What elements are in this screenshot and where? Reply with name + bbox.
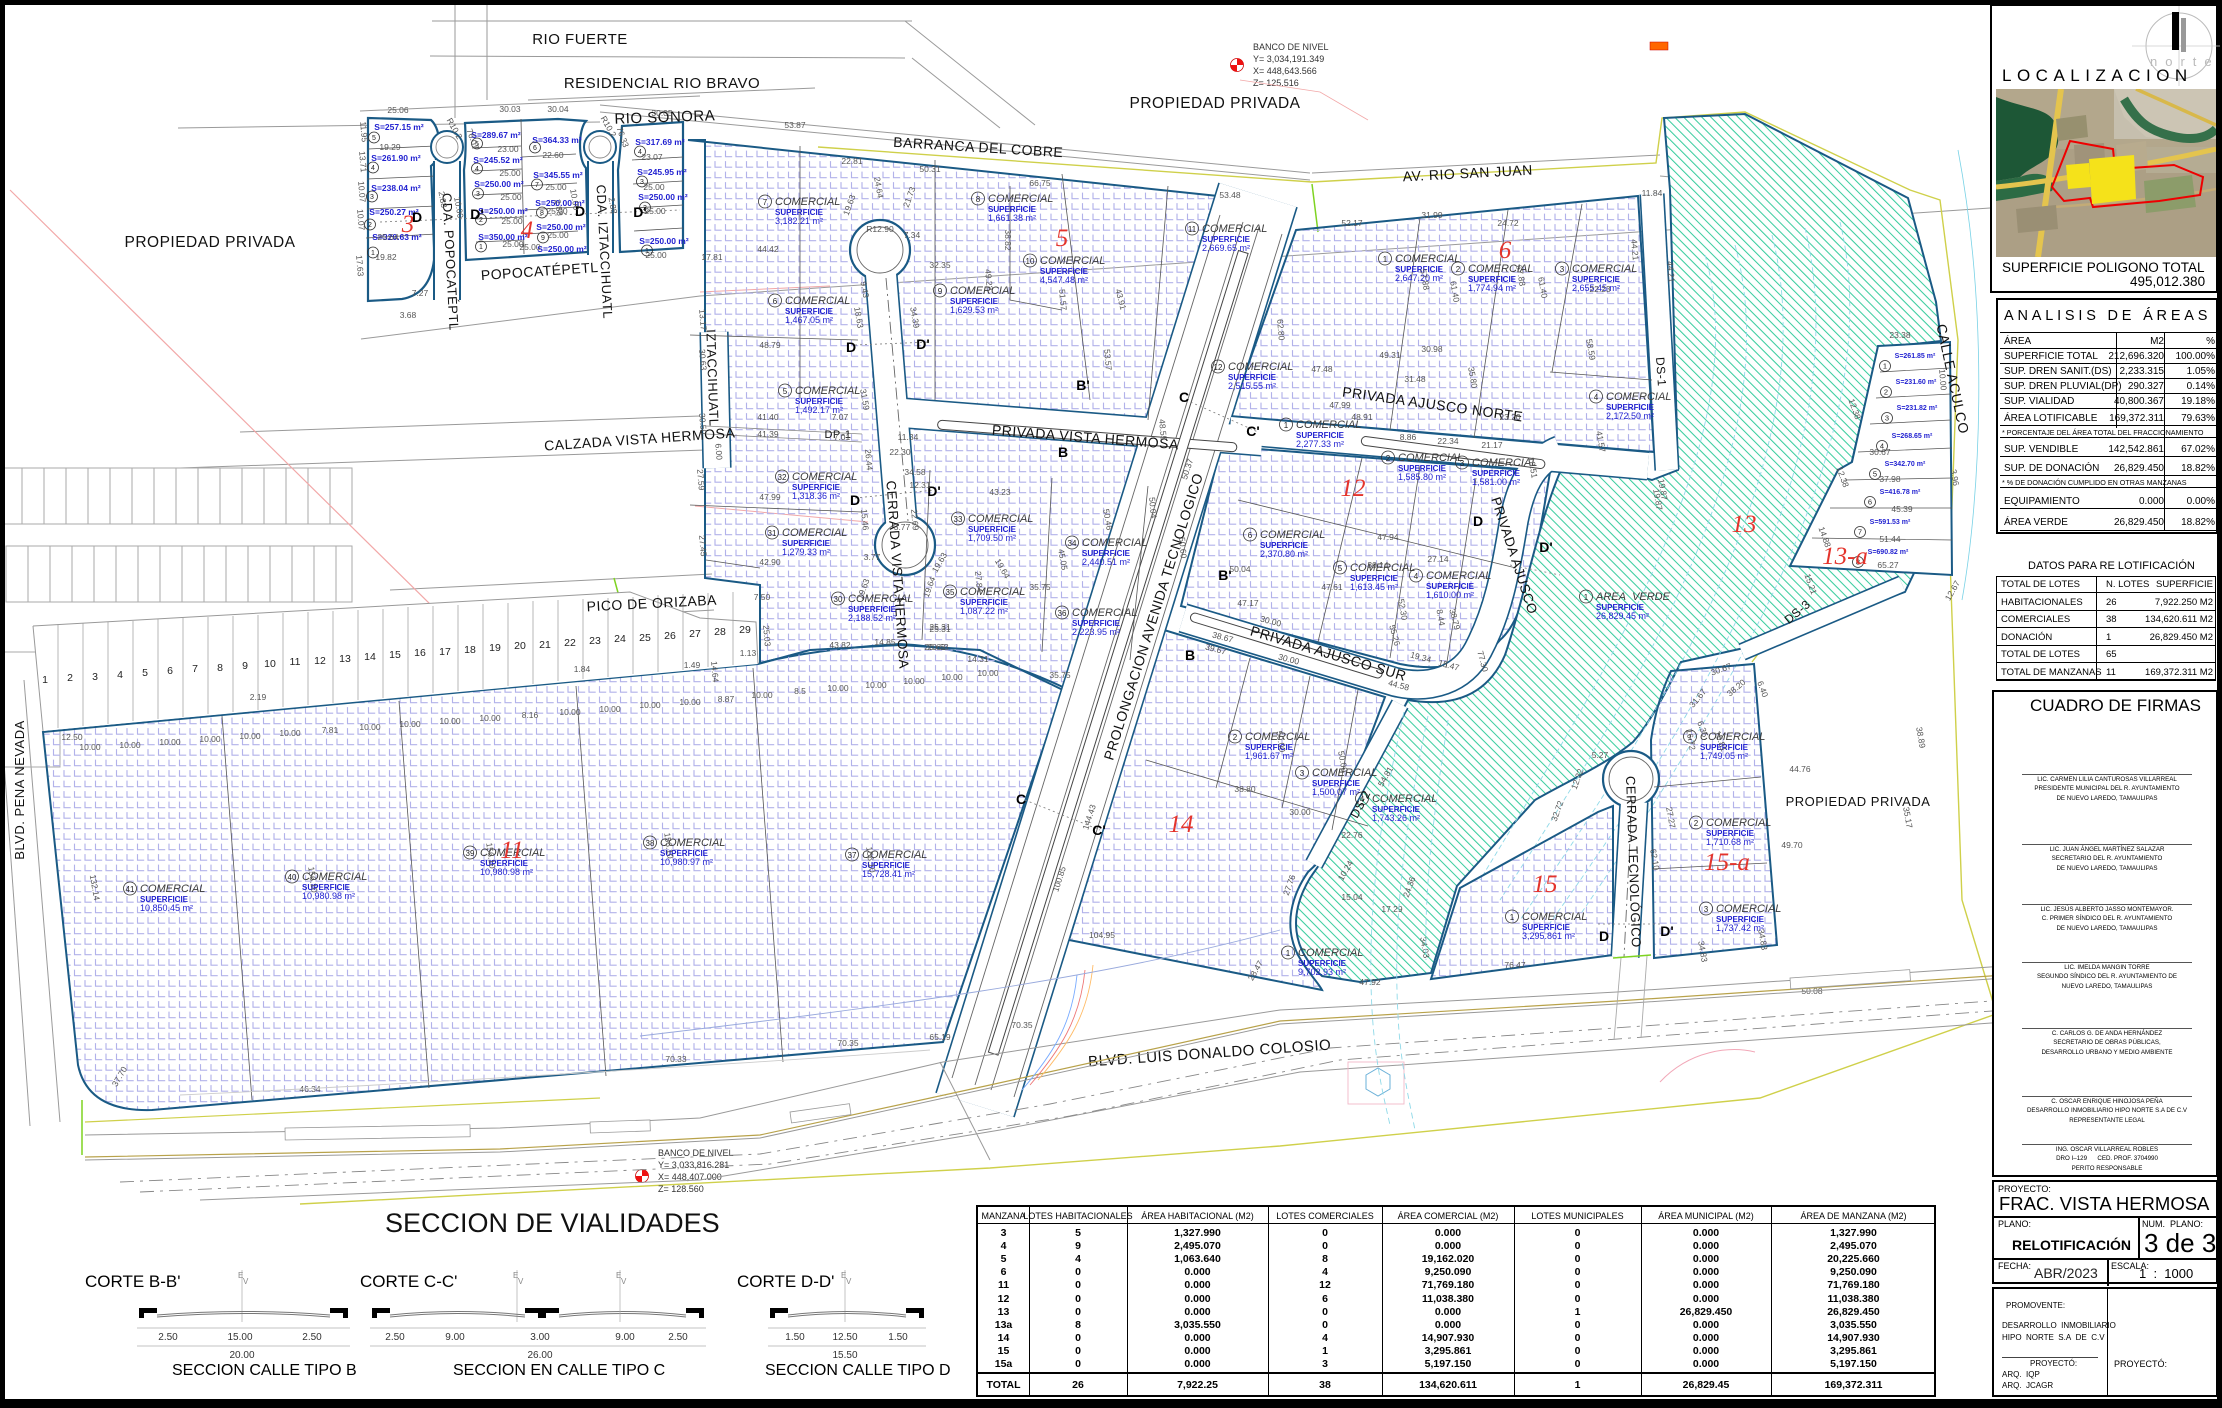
svg-text:V: V [621,1277,627,1286]
svg-text:1.50: 1.50 [785,1332,805,1343]
svg-text:2.50: 2.50 [158,1332,178,1343]
svg-text:2.50: 2.50 [385,1332,405,1343]
svg-text:9.00: 9.00 [445,1332,465,1343]
svg-text:20.00: 20.00 [229,1350,254,1361]
svg-text:V: V [846,1277,852,1286]
svg-text:15.50: 15.50 [832,1350,857,1361]
svg-text:V: V [518,1277,524,1286]
svg-text:2.50: 2.50 [668,1332,688,1343]
svg-text:1.50: 1.50 [888,1332,908,1343]
svg-text:2.50: 2.50 [302,1332,322,1343]
svg-text:V: V [243,1277,249,1286]
svg-text:15.00: 15.00 [227,1332,252,1343]
svg-text:12.50: 12.50 [832,1332,857,1343]
svg-text:26.00: 26.00 [527,1350,552,1361]
svg-text:9.00: 9.00 [615,1332,635,1343]
svg-text:3.00: 3.00 [530,1332,550,1343]
